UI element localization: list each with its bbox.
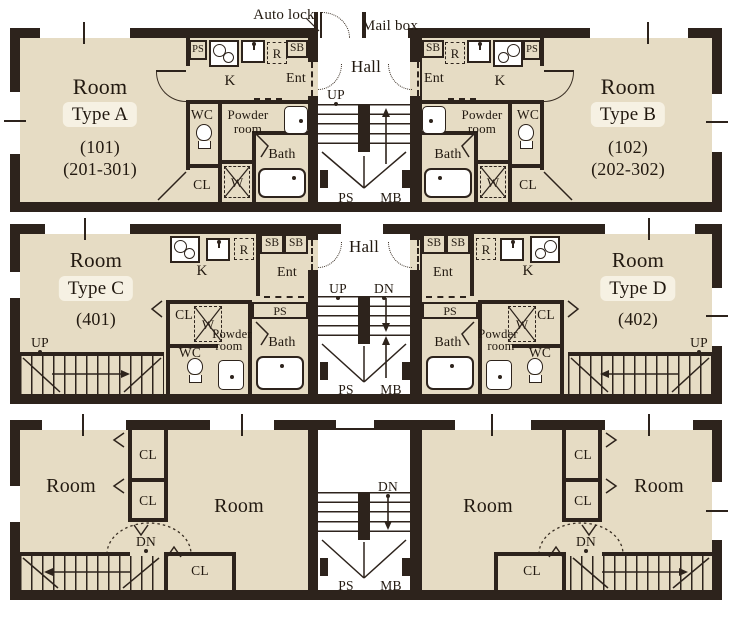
stove-icon (530, 236, 560, 263)
wall (166, 300, 252, 304)
washbasin-icon (486, 360, 512, 390)
stairs-up-arrow-icon (380, 108, 392, 164)
unit-d-number-label: (402) (618, 310, 658, 328)
wall (320, 362, 328, 380)
unit-c-type-label: Type C (59, 276, 133, 301)
stairs-left-arrow-icon (600, 368, 678, 380)
wall (256, 234, 260, 296)
pipe-space-label: PS (443, 305, 456, 317)
refrigerator-label: R (451, 47, 460, 60)
meter-box-label: MB (380, 383, 401, 397)
shoe-box: SB (284, 234, 308, 254)
down-label: DN (374, 282, 394, 296)
stairs-down-arrow-icon (382, 496, 394, 530)
bifold-door-icon (112, 478, 126, 494)
sink-icon (467, 40, 491, 63)
wall (422, 100, 544, 104)
up-label: UP (327, 88, 345, 102)
pipe-space-box: PS (189, 40, 207, 60)
stair-landing-lines (318, 296, 410, 384)
bathtub-icon (258, 168, 306, 198)
shoe-box-label: SB (290, 43, 304, 55)
bathtub-icon (426, 356, 474, 390)
burner-icon (223, 52, 234, 63)
down-label: DN (136, 535, 156, 549)
window (45, 224, 130, 234)
closet-label: CL (574, 448, 592, 462)
room-label: Room (634, 476, 684, 496)
wall (562, 430, 566, 522)
window (712, 288, 722, 346)
stairs-down-arrow-icon (380, 298, 392, 332)
powder-room-label: room (487, 340, 514, 353)
window-tick (706, 121, 728, 123)
washer-box: W (480, 166, 506, 198)
wall (402, 362, 410, 380)
entrance-label: Ent (286, 72, 306, 86)
window (336, 420, 374, 428)
pipe-space-box: PS (422, 302, 478, 319)
wall (186, 164, 222, 168)
bath-label: Bath (268, 148, 295, 162)
kitchen-label: K (196, 264, 207, 279)
entrance-label: Ent (277, 266, 297, 280)
dashed-threshold (417, 240, 419, 270)
wall (186, 100, 308, 104)
pipe-space-box: PS (252, 302, 308, 319)
wall (562, 478, 602, 482)
shoe-box: SB (422, 234, 446, 254)
up-dot (697, 350, 701, 354)
window-tick (647, 22, 649, 44)
unit-b-room-label: Room (601, 76, 656, 98)
closet-label: CL (574, 494, 592, 508)
wall (540, 104, 544, 170)
wall (402, 558, 410, 576)
dashed-threshold (311, 62, 313, 96)
dashed-threshold (254, 98, 282, 100)
shoe-box-label: SB (265, 238, 279, 250)
unit-c-number-label: (401) (76, 310, 116, 328)
window-tick (4, 120, 26, 122)
stove-icon (209, 40, 239, 67)
wall (128, 478, 168, 482)
wall (494, 556, 498, 590)
bathtub-icon (256, 356, 304, 390)
window-tick (706, 315, 728, 317)
stairs-up-arrow-icon (380, 336, 392, 378)
unit-a-number-label: (101) (80, 138, 120, 156)
bifold-door-icon (604, 478, 618, 494)
unit-a-room-label: Room (73, 76, 128, 98)
burner-icon (544, 240, 557, 253)
refrigerator-box: R (445, 42, 465, 64)
pipe-space-label: PS (338, 383, 353, 397)
wall (320, 170, 328, 188)
toilet-icon (186, 358, 204, 383)
closet-label: CL (139, 448, 157, 462)
bifold-door-icon (566, 300, 580, 318)
down-dot (144, 549, 148, 553)
refrigerator-label: R (273, 47, 282, 60)
faucet-dot (217, 240, 221, 244)
wall (222, 160, 252, 164)
pipe-space-label: PS (192, 45, 204, 56)
wall (402, 170, 410, 188)
wall (164, 430, 168, 522)
wall (494, 552, 566, 556)
wall (598, 430, 602, 478)
bathtub-icon (424, 168, 472, 198)
refrigerator-box: R (234, 238, 254, 260)
toilet-icon (517, 124, 535, 149)
window-tick (706, 510, 728, 512)
faucet-dot (478, 42, 482, 46)
washer-box: W (224, 166, 250, 198)
unit-c-room-label: Room (70, 250, 122, 271)
dashed-threshold (311, 240, 313, 270)
window (712, 94, 722, 152)
bath-label: Bath (434, 148, 461, 162)
kitchen-label: K (494, 74, 505, 89)
pipe-space-box: PS (523, 40, 541, 60)
toilet-icon (195, 124, 213, 149)
entrance-label: Ent (433, 266, 453, 280)
shoe-box: SB (260, 234, 284, 254)
bifold-door-icon (112, 432, 126, 448)
pipe-space-label: PS (338, 579, 353, 593)
bifold-door-icon (604, 432, 618, 448)
refrigerator-box: R (267, 42, 287, 64)
window (42, 420, 126, 430)
wall (508, 104, 512, 202)
powder-room-label: Powder (228, 108, 269, 121)
wall (560, 302, 564, 394)
unit-d-room-label: Room (612, 250, 664, 271)
wall (320, 558, 328, 576)
washbasin-icon (284, 106, 308, 134)
window-tick (648, 414, 650, 436)
stove-icon (170, 236, 200, 263)
room-label: Room (463, 496, 513, 516)
shoe-box-label: SB (289, 238, 303, 250)
down-dot (584, 549, 588, 553)
down-label: DN (576, 535, 596, 549)
hall-label: Hall (349, 238, 379, 255)
unit-a-stack-label: (201-301) (63, 160, 137, 178)
closet-label: CL (175, 308, 193, 322)
unit-a-entry-opening (308, 62, 318, 96)
floor-plan: Auto lock Mail box PS R SB K Ent WC Powd… (0, 0, 731, 619)
kitchen-label: K (522, 264, 533, 279)
unit-d-type-label: Type D (600, 276, 675, 301)
dashed-threshold (264, 296, 304, 298)
window-tick (648, 218, 650, 240)
unit-b-stack-label: (202-302) (591, 160, 665, 178)
stair-landing-lines (318, 104, 410, 192)
shoe-box: SB (446, 234, 470, 254)
pipe-space-label: PS (273, 305, 286, 317)
closet-label: CL (537, 308, 555, 322)
sink-icon (241, 40, 265, 63)
toilet-label: WC (191, 108, 213, 122)
closet-door-leaf (544, 172, 572, 200)
wall (232, 556, 236, 590)
bath-label: Bath (434, 336, 461, 350)
burner-icon (535, 248, 546, 259)
wall (128, 430, 132, 478)
refrigerator-box: R (476, 238, 496, 260)
faucet-dot (252, 42, 256, 46)
closet-label: CL (519, 178, 537, 192)
burner-icon (507, 44, 520, 57)
kitchen-label: K (224, 74, 235, 89)
bath-label: Bath (268, 336, 295, 350)
bath-door-icon (460, 322, 476, 346)
meter-box-label: MB (380, 579, 401, 593)
burner-icon (498, 52, 509, 63)
unit-a-type-label: Type A (63, 102, 137, 127)
up-label: UP (31, 336, 49, 350)
sink-icon (206, 238, 230, 261)
up-label: UP (329, 282, 347, 296)
entrance-label: Ent (424, 72, 444, 86)
wall (166, 302, 170, 394)
window-tick (491, 414, 493, 436)
closet-label: CL (191, 564, 209, 578)
wall (186, 104, 190, 170)
dashed-threshold (426, 296, 466, 298)
powder-room-label: Powder (462, 108, 503, 121)
burner-icon (184, 248, 195, 259)
sink-icon (500, 238, 524, 261)
powder-room-label: room (215, 340, 242, 353)
shoe-box: SB (422, 40, 444, 58)
stairs-right-arrow-icon (602, 566, 688, 578)
shoe-box-label: SB (426, 43, 440, 55)
closet-label: CL (193, 178, 211, 192)
dashed-threshold (417, 62, 419, 96)
room-label: Room (214, 496, 264, 516)
shoe-box-label: SB (451, 238, 465, 250)
closet-door-leaf (158, 172, 186, 200)
up-label: UP (690, 336, 708, 350)
bifold-door-icon (150, 300, 164, 318)
closet-label: CL (139, 494, 157, 508)
washbasin-icon (422, 106, 446, 134)
washer-x-icon (224, 166, 250, 198)
wall (478, 300, 564, 304)
refrigerator-label: R (482, 243, 491, 256)
window (590, 28, 688, 38)
shoe-box: SB (286, 40, 308, 58)
meter-box-label: MB (380, 191, 401, 205)
hall-label: Hall (351, 58, 381, 75)
window-tick (82, 414, 84, 436)
toilet-label: WC (517, 108, 539, 122)
wall (598, 482, 602, 520)
wall (478, 300, 482, 394)
stairs-right-arrow-icon (52, 368, 130, 380)
auto-lock-label: Auto lock (253, 8, 314, 23)
window-tick (84, 218, 86, 240)
stair-landing-lines (318, 492, 410, 580)
wall (478, 160, 508, 164)
window (10, 92, 20, 154)
wall (470, 234, 474, 296)
wall (508, 164, 544, 168)
toilet-icon (526, 358, 544, 383)
stove-icon (493, 40, 523, 67)
window (40, 28, 130, 38)
window-tick (241, 414, 243, 436)
shoe-box-label: SB (427, 238, 441, 250)
pipe-space-label: PS (526, 45, 538, 56)
room-label: Room (46, 476, 96, 496)
window (10, 486, 20, 522)
wall (164, 552, 236, 556)
window (341, 224, 383, 234)
refrigerator-label: R (240, 243, 249, 256)
mail-box-label: Mail box (362, 19, 418, 34)
unit-b-type-label: Type B (591, 102, 665, 127)
window-tick (83, 22, 85, 44)
wall (562, 556, 566, 590)
washbasin-icon (218, 360, 244, 390)
stairs-left-arrow-icon (44, 566, 130, 578)
unit-b-number-label: (102) (608, 138, 648, 156)
wall (218, 104, 222, 202)
wall (128, 482, 132, 520)
unit-c-entry-opening (308, 240, 318, 270)
window (455, 420, 531, 430)
pipe-space-label: PS (338, 191, 353, 205)
faucet-dot (511, 240, 515, 244)
wall (164, 556, 168, 590)
closet-label: CL (523, 564, 541, 578)
window (10, 272, 20, 298)
dashed-threshold (448, 98, 476, 100)
window (605, 224, 695, 234)
up-dot (38, 350, 42, 354)
bath-door-icon (460, 134, 476, 158)
